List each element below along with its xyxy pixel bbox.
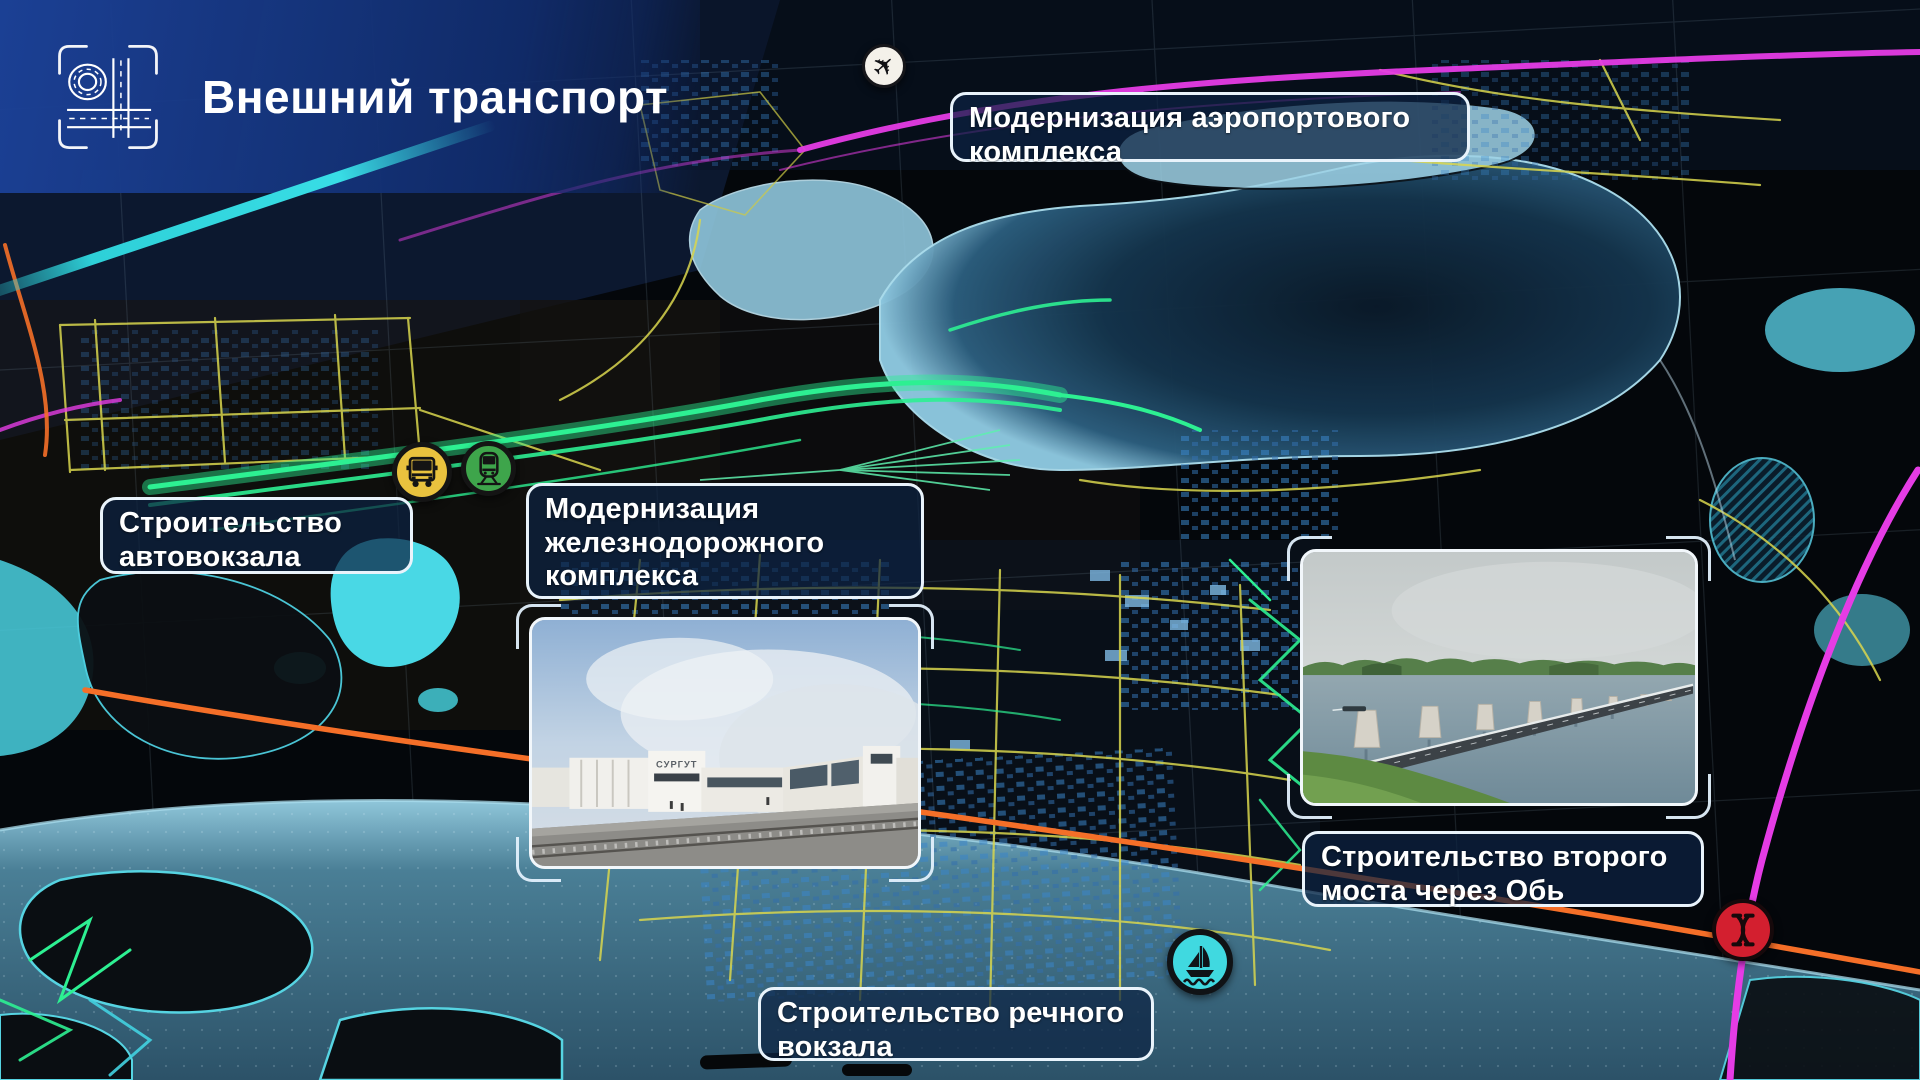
- bus-icon: [400, 450, 444, 494]
- callout-line: Модернизация аэропортового: [969, 102, 1451, 136]
- railway-callout: Модернизация железнодорожного комплекса: [526, 483, 924, 599]
- bridge-render-image[interactable]: [1300, 549, 1698, 806]
- callout-line: комплекса: [545, 560, 905, 594]
- page-title: Внешний транспорт: [202, 70, 668, 124]
- airport-marker[interactable]: ✈: [862, 44, 906, 88]
- river-terminal-marker[interactable]: [1167, 929, 1233, 995]
- airport-callout: Модернизация аэропортового комплекса: [950, 92, 1470, 162]
- slide: Внешний транспорт ✈: [0, 0, 1920, 1080]
- second-bridge-callout: Строительство второго моста через Обь: [1302, 831, 1704, 907]
- callout-line: Строительство второго: [1321, 841, 1685, 875]
- train-icon: [469, 449, 509, 489]
- railway-render-frame: СУРГУТ: [529, 617, 921, 869]
- bridge-render-frame: [1300, 549, 1698, 806]
- bridge-pylon-icon: [1720, 907, 1766, 953]
- river-terminal-callout: Строительство речного вокзала: [758, 987, 1154, 1061]
- bus-terminal-callout: Строительство автовокзала: [100, 497, 413, 574]
- callout-line: автовокзала: [119, 541, 394, 575]
- callout-line: комплекса: [969, 136, 1451, 170]
- callout-line: вокзала: [777, 1031, 1135, 1065]
- callout-line: Строительство: [119, 507, 394, 541]
- callout-line: моста через Обь: [1321, 875, 1685, 909]
- callout-line: железнодорожного: [545, 527, 905, 561]
- railway-marker[interactable]: [461, 441, 516, 496]
- bus-terminal-marker[interactable]: [392, 442, 452, 502]
- airplane-icon: ✈: [867, 48, 902, 83]
- header-panel: Внешний транспорт: [0, 0, 700, 193]
- station-sign-text: СУРГУТ: [656, 760, 697, 770]
- road-interchange-icon: [52, 41, 164, 153]
- callout-line: Строительство речного: [777, 997, 1135, 1031]
- railway-render-image[interactable]: СУРГУТ: [529, 617, 921, 869]
- second-bridge-marker[interactable]: [1712, 899, 1774, 961]
- callout-line: Модернизация: [545, 493, 905, 527]
- sailboat-icon: [1176, 938, 1224, 986]
